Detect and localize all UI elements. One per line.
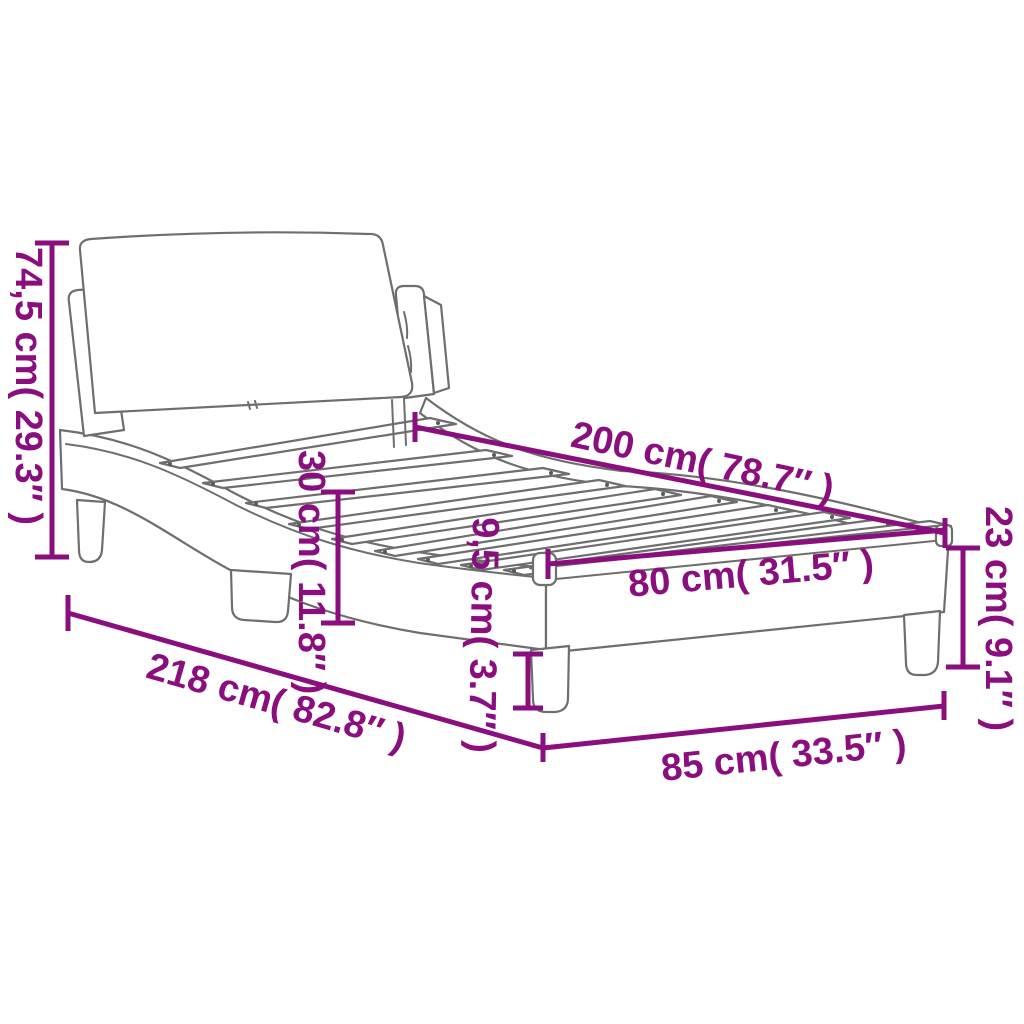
bed-dimension-diagram: 74,5 cm( 29.3″ ) 30 cm( 11.8″ ) 9,5 cm( … <box>0 0 1024 1024</box>
dim-label-headboard-height: 74,5 cm( 29.3″ ) <box>7 247 49 525</box>
dim-label-rail-height: 30 cm( 11.8″ ) <box>290 450 332 694</box>
slat-fastener <box>830 515 834 519</box>
leg-mid-left <box>231 570 291 622</box>
diagram-canvas: 74,5 cm( 29.3″ ) 30 cm( 11.8″ ) 9,5 cm( … <box>0 0 1024 1024</box>
slat-fastener <box>426 558 430 562</box>
slat-fastener <box>383 550 387 554</box>
slat-fastener <box>168 462 172 466</box>
dim-label-total-length: 218 cm( 82.8″ ) <box>142 645 411 759</box>
slat-fastener <box>774 508 778 512</box>
dim-label-base-clearance: 9,5 cm( 3.7″ ) <box>460 517 506 753</box>
post-lower-edge <box>392 400 394 447</box>
slat-fastener <box>512 569 516 573</box>
dim-line-foot-end-height <box>946 548 980 667</box>
corner-cap-left <box>533 553 556 585</box>
slat-fastener <box>340 538 344 542</box>
leg-foot-right <box>904 611 940 675</box>
slat-fastener <box>717 499 721 503</box>
slat-fastener <box>254 502 258 506</box>
slat-fastener <box>492 453 496 457</box>
slat-fastener <box>549 471 553 475</box>
slat-fastener <box>661 492 665 496</box>
slat-fastener <box>436 421 440 425</box>
slat-fastener <box>605 483 609 487</box>
dim-label-foot-end-height: 23 cm( 9.1″ ) <box>977 506 1019 731</box>
slat-fastener <box>211 482 215 486</box>
headboard <box>80 232 412 413</box>
leg-head-left <box>77 500 105 562</box>
post-lower-edge <box>404 398 406 445</box>
